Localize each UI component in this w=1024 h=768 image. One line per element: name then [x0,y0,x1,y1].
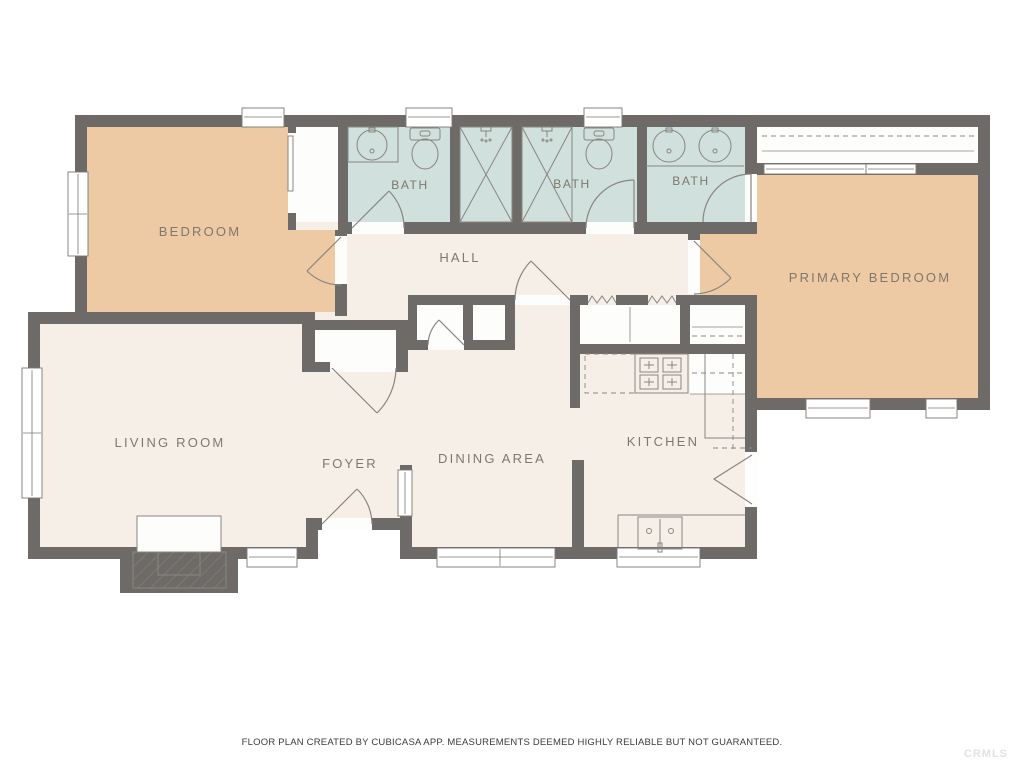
footer-disclaimer: FLOOR PLAN CREATED BY CUBICASA APP. MEAS… [242,737,783,748]
vestibule-closet [690,305,745,344]
hall-closet-a [315,330,396,362]
bedroom-closet [296,127,338,222]
window [584,108,622,127]
floor-plan: BEDROOM BATH BATH BATH HALL PRIMARY BEDR… [0,0,1024,768]
label-dining-area: DINING AREA [438,451,546,466]
primary-closet-strip [757,127,978,163]
pass-through-window [398,470,412,516]
label-primary-bedroom: PRIMARY BEDROOM [789,270,952,285]
window [68,172,88,256]
window [242,108,284,127]
floor-plan-page: BEDROOM BATH BATH BATH HALL PRIMARY BEDR… [0,0,1024,768]
window [247,548,297,567]
window [406,108,452,127]
hall-closet-b1 [417,305,463,340]
window [926,399,957,418]
label-bedroom: BEDROOM [159,224,242,239]
room-primary-bedroom [757,175,978,398]
window [437,548,555,567]
watermark-crmls: CRMLS [964,748,1008,760]
sliding-door [764,164,866,174]
label-bath-3: BATH [672,174,710,188]
window [806,399,870,418]
window [22,368,42,498]
room-primary-vestibule [700,234,757,300]
hall-closet-b2 [473,305,505,340]
fireplace-icon [133,516,226,588]
sliding-door [866,164,916,174]
label-hall: HALL [439,250,480,265]
door-bedroom-closet-slider [288,136,293,191]
label-foyer: FOYER [322,456,378,471]
label-living-room: LIVING ROOM [115,435,226,450]
label-bath-1: BATH [391,178,429,192]
kitchen-pantry [690,354,745,394]
label-kitchen: KITCHEN [627,434,699,449]
label-bath-2: BATH [553,177,591,191]
